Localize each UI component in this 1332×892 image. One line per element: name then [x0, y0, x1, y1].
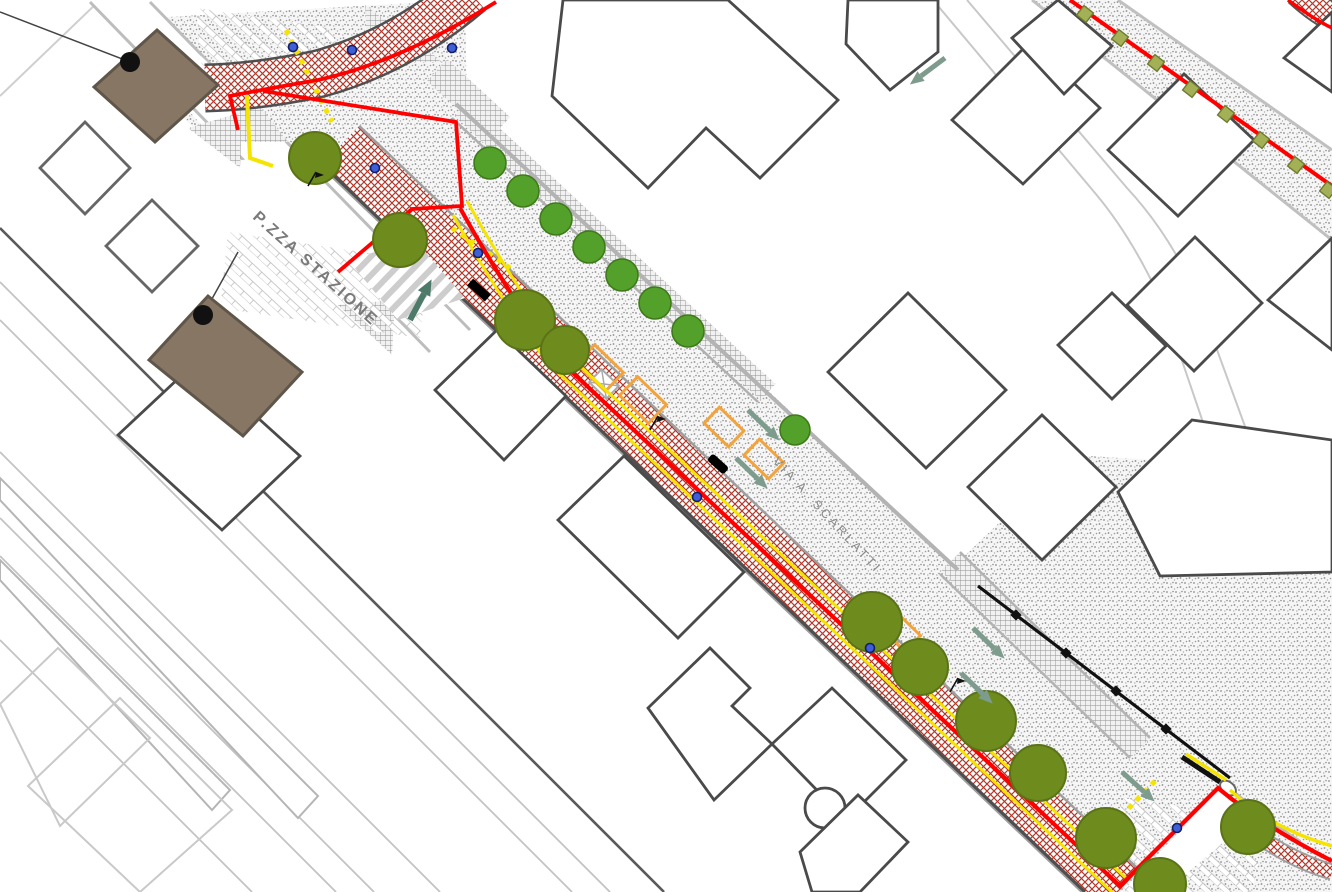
lamp-marker	[348, 46, 357, 55]
tree-symbol	[573, 231, 605, 263]
tree-symbol	[474, 147, 506, 179]
urban-plan-map: P.ZZA STAZIONE VIA A. SCARLATTI	[0, 0, 1332, 892]
tree-symbol	[373, 213, 427, 267]
lamp-marker	[693, 493, 702, 502]
lamp-marker	[448, 44, 457, 53]
tree-symbol	[892, 639, 948, 695]
tree-symbol	[540, 203, 572, 235]
tree-symbol	[1221, 800, 1275, 854]
tree-symbol	[1076, 808, 1136, 868]
tree-symbol	[780, 415, 810, 445]
lamp-marker	[289, 43, 298, 52]
tree-symbol	[507, 175, 539, 207]
lamp-marker	[474, 249, 483, 258]
lamp-marker	[1173, 824, 1182, 833]
survey-point	[120, 52, 140, 72]
map-canvas: P.ZZA STAZIONE VIA A. SCARLATTI	[0, 0, 1332, 892]
tree-symbol	[541, 326, 589, 374]
tree-symbol	[1010, 745, 1066, 801]
tree-symbol	[842, 592, 902, 652]
tree-symbol	[672, 315, 704, 347]
tree-symbol	[606, 259, 638, 291]
tree-symbol	[289, 132, 341, 184]
tree-symbol	[639, 287, 671, 319]
survey-point	[193, 305, 213, 325]
lamp-marker	[866, 644, 875, 653]
lamp-marker	[371, 164, 380, 173]
